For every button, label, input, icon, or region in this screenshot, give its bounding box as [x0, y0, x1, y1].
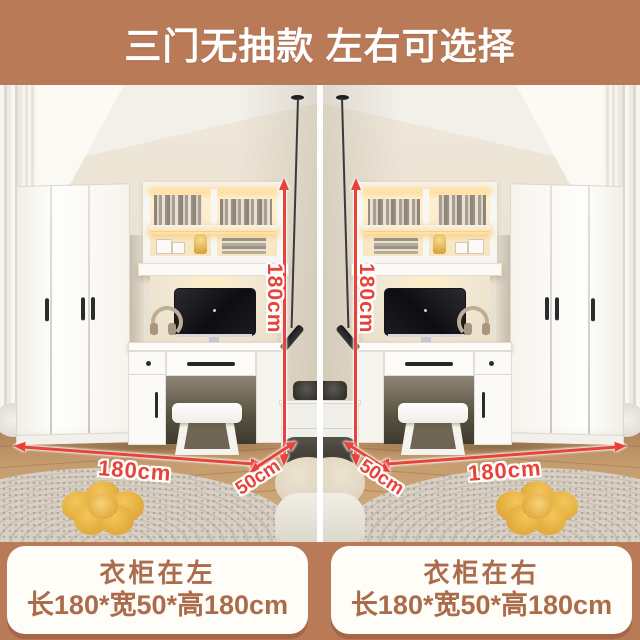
panel-divider: [317, 85, 323, 542]
caption-size: 长180*宽50*高180cm: [351, 590, 612, 621]
photo-area: 180cm 180cm 50cm: [0, 85, 640, 542]
dimension-labels: 180cm 180cm 50cm: [0, 85, 317, 542]
depth-dimension-label: 50cm: [355, 456, 408, 501]
panel-wardrobe-left: 180cm 180cm 50cm: [0, 85, 317, 542]
caption-band: 衣柜在左 长180*宽50*高180cm 衣柜在右 长180*宽50*高180c…: [0, 542, 640, 640]
height-dimension-label: 180cm: [262, 263, 286, 333]
depth-dimension-label: 50cm: [232, 456, 285, 501]
panel-wardrobe-right: 180cm 180cm 50cm: [323, 85, 640, 542]
banner-title: 三门无抽款 左右可选择: [124, 16, 515, 70]
caption-title: 衣柜在左: [99, 559, 215, 589]
top-banner: 三门无抽款 左右可选择: [0, 0, 640, 85]
height-dimension-label: 180cm: [354, 263, 378, 333]
width-dimension-label: 180cm: [468, 455, 543, 487]
width-dimension-label: 180cm: [97, 455, 172, 487]
caption-card-right: 衣柜在右 长180*宽50*高180cm: [331, 546, 632, 634]
caption-card-left: 衣柜在左 长180*宽50*高180cm: [7, 546, 308, 634]
dimension-labels: 180cm 180cm 50cm: [323, 85, 640, 542]
caption-title: 衣柜在右: [423, 559, 539, 589]
caption-size: 长180*宽50*高180cm: [27, 590, 288, 621]
